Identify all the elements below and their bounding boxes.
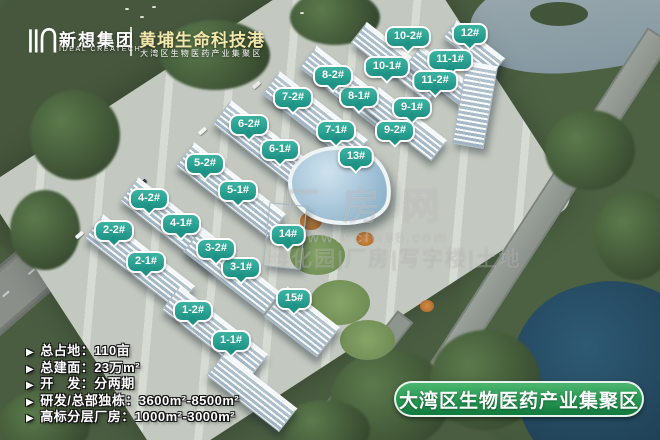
tree xyxy=(30,90,120,180)
building-marker: 14# xyxy=(270,224,306,246)
bullet-arrow-icon: ▶ xyxy=(26,412,34,426)
building-marker-label: 6-2# xyxy=(238,118,260,130)
building-marker: 9-2# xyxy=(375,120,415,142)
stat-text: 高标分层厂房：1000m²-3000m² xyxy=(40,410,235,424)
project-subtitle: 大湾区生物医药产业集聚区 xyxy=(140,48,262,59)
building-marker-label: 9-1# xyxy=(401,101,423,113)
building-marker-label: 8-1# xyxy=(348,90,370,102)
cluster-banner-text: 大湾区生物医药产业集聚区 xyxy=(399,386,639,413)
building-marker-label: 5-2# xyxy=(194,157,216,169)
project-stats: ▶ 总占地：110亩 ▶ 总建面：23万m² ▶ 开 发：分两期 ▶ 研发/总部… xyxy=(26,344,239,426)
building-marker: 4-2# xyxy=(129,188,169,210)
orange-trees xyxy=(420,300,434,312)
building-marker: 9-1# xyxy=(392,97,432,119)
header-divider xyxy=(130,27,132,56)
stat-row: ▶ 研发/总部独栋：3600m²-8500m² xyxy=(26,394,239,410)
building-marker-label: 15# xyxy=(285,292,303,304)
building-marker: 13# xyxy=(338,146,374,168)
building-marker: 15# xyxy=(276,288,312,310)
building-marker-label: 3-2# xyxy=(205,242,227,254)
brand-name-en: IDEAL CREATECH xyxy=(59,46,141,53)
stat-text: 总占地：110亩 xyxy=(40,344,130,358)
bullet-arrow-icon: ▶ xyxy=(26,363,34,377)
building-marker: 8-1# xyxy=(339,86,379,108)
stat-row: ▶ 总建面：23万m² xyxy=(26,361,239,377)
building-marker-label: 4-2# xyxy=(138,192,160,204)
poster: 厂房网 www.cfw98.com 孵化园|厂房|写字楼|土地 1-1# 1-2… xyxy=(0,0,660,440)
building-marker: 2-1# xyxy=(126,251,166,273)
building-marker: 11-2# xyxy=(412,70,458,92)
building-marker-label: 14# xyxy=(279,228,297,240)
bullet-arrow-icon: ▶ xyxy=(26,379,34,393)
building-marker: 4-1# xyxy=(161,213,201,235)
bullet-arrow-icon: ▶ xyxy=(26,396,34,410)
building-marker-label: 2-2# xyxy=(103,224,125,236)
building-marker: 3-2# xyxy=(196,238,236,260)
watermark-tagline: 孵化园|厂房|写字楼|土地 xyxy=(268,243,522,273)
building-marker-label: 5-1# xyxy=(227,184,249,196)
stat-row: ▶ 高标分层厂房：1000m²-3000m² xyxy=(26,410,239,426)
stat-text: 研发/总部独栋：3600m²-8500m² xyxy=(40,394,239,408)
stat-row: ▶ 开 发：分两期 xyxy=(26,377,239,393)
building-marker-label: 7-2# xyxy=(282,91,304,103)
building-marker-label: 1-2# xyxy=(182,304,204,316)
stat-text: 开 发：分两期 xyxy=(40,377,135,391)
building-marker-label: 11-2# xyxy=(421,74,449,86)
lawn xyxy=(340,320,395,360)
building-marker-label: 3-1# xyxy=(230,261,252,273)
ideal-createch-logo-icon xyxy=(26,23,58,57)
building-marker-label: 9-2# xyxy=(384,124,406,136)
building-marker: 7-1# xyxy=(316,120,356,142)
header: 新想集团 IDEAL CREATECH 黄埔生命科技港 大湾区生物医药产业集聚区 xyxy=(0,0,660,70)
building-marker-label: 7-1# xyxy=(325,124,347,136)
stat-row: ▶ 总占地：110亩 xyxy=(26,344,239,360)
building-marker-label: 8-2# xyxy=(322,69,344,81)
building-marker: 6-2# xyxy=(229,114,269,136)
stat-text: 总建面：23万m² xyxy=(40,361,140,375)
building-marker: 6-1# xyxy=(260,139,300,161)
tree xyxy=(545,110,635,190)
building-marker: 7-2# xyxy=(273,87,313,109)
building-marker: 3-1# xyxy=(221,257,261,279)
building-marker-label: 2-1# xyxy=(135,255,157,267)
building-marker: 2-2# xyxy=(94,220,134,242)
building-marker: 1-2# xyxy=(173,300,213,322)
tree xyxy=(10,190,80,270)
cluster-banner: 大湾区生物医药产业集聚区 xyxy=(394,381,644,417)
bullet-arrow-icon: ▶ xyxy=(26,346,34,360)
building-marker: 5-1# xyxy=(218,180,258,202)
watermark-site-name: 厂房网 xyxy=(282,176,462,231)
building-marker-label: 4-1# xyxy=(170,217,192,229)
building-marker: 5-2# xyxy=(185,153,225,175)
building-marker-label: 13# xyxy=(347,150,365,162)
building-marker-label: 6-1# xyxy=(269,143,291,155)
